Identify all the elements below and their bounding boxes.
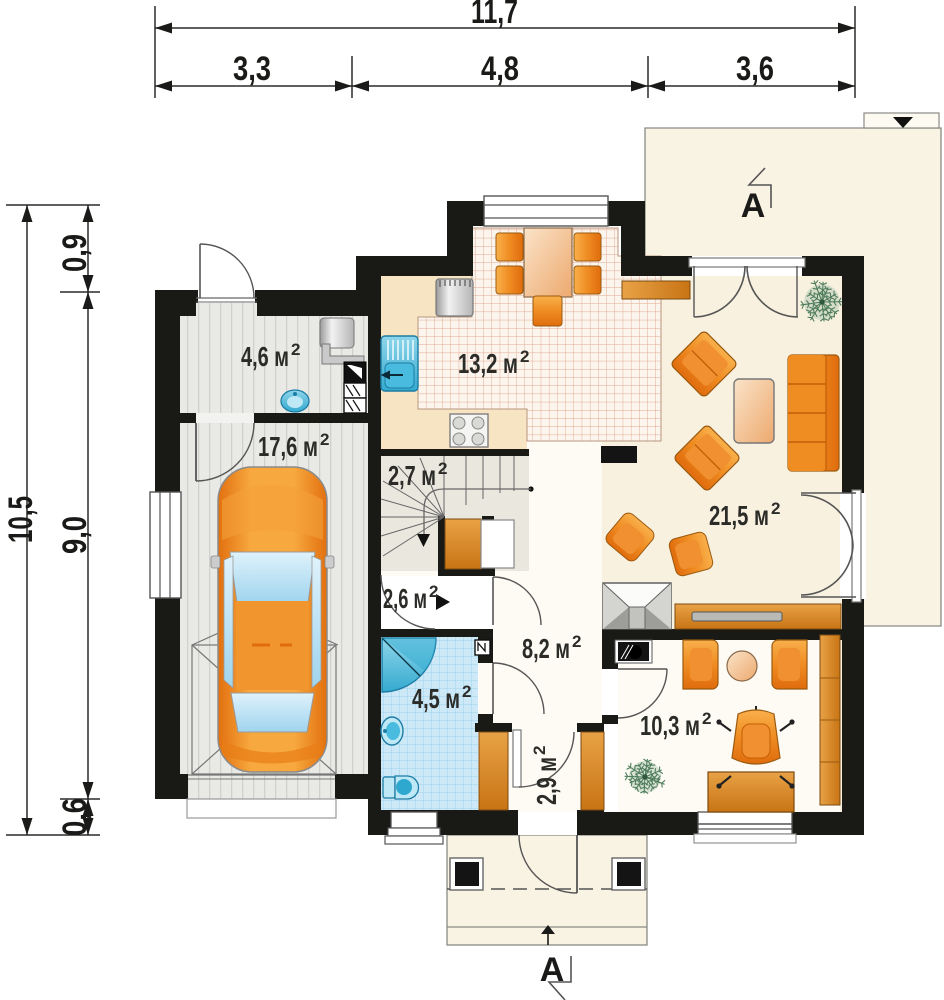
svg-text:4,6 м: 4,6 м xyxy=(241,341,289,372)
svg-text:4,8: 4,8 xyxy=(481,50,519,88)
svg-text:4,5 м: 4,5 м xyxy=(412,683,460,714)
svg-text:2,7 м: 2,7 м xyxy=(388,460,436,491)
svg-text:2: 2 xyxy=(572,632,581,651)
svg-text:2,9 м: 2,9 м xyxy=(531,757,562,805)
svg-text:9,0: 9,0 xyxy=(56,516,94,554)
svg-text:2: 2 xyxy=(771,499,780,518)
svg-text:A: A xyxy=(741,187,766,225)
svg-text:21,5 м: 21,5 м xyxy=(709,500,769,531)
svg-text:2: 2 xyxy=(530,746,549,755)
svg-text:3,6: 3,6 xyxy=(736,50,774,88)
svg-text:2: 2 xyxy=(320,430,329,449)
svg-text:10,3 м: 10,3 м xyxy=(640,710,700,741)
svg-text:2: 2 xyxy=(429,582,438,601)
svg-text:2: 2 xyxy=(462,682,471,701)
svg-text:2: 2 xyxy=(438,459,447,478)
svg-text:13,2 м: 13,2 м xyxy=(458,348,518,379)
svg-text:0,9: 0,9 xyxy=(56,234,94,272)
svg-text:2: 2 xyxy=(702,709,711,728)
svg-text:10,5: 10,5 xyxy=(2,496,40,543)
svg-text:3,3: 3,3 xyxy=(233,50,271,88)
svg-text:11,7: 11,7 xyxy=(471,0,518,31)
svg-text:17,6 м: 17,6 м xyxy=(258,431,318,462)
svg-text:8,2 м: 8,2 м xyxy=(522,633,570,664)
svg-text:2: 2 xyxy=(291,340,300,359)
svg-text:2,6 м: 2,6 м xyxy=(383,583,427,614)
svg-text:0,6: 0,6 xyxy=(56,798,94,836)
svg-text:2: 2 xyxy=(520,347,529,366)
svg-text:A: A xyxy=(540,951,565,989)
